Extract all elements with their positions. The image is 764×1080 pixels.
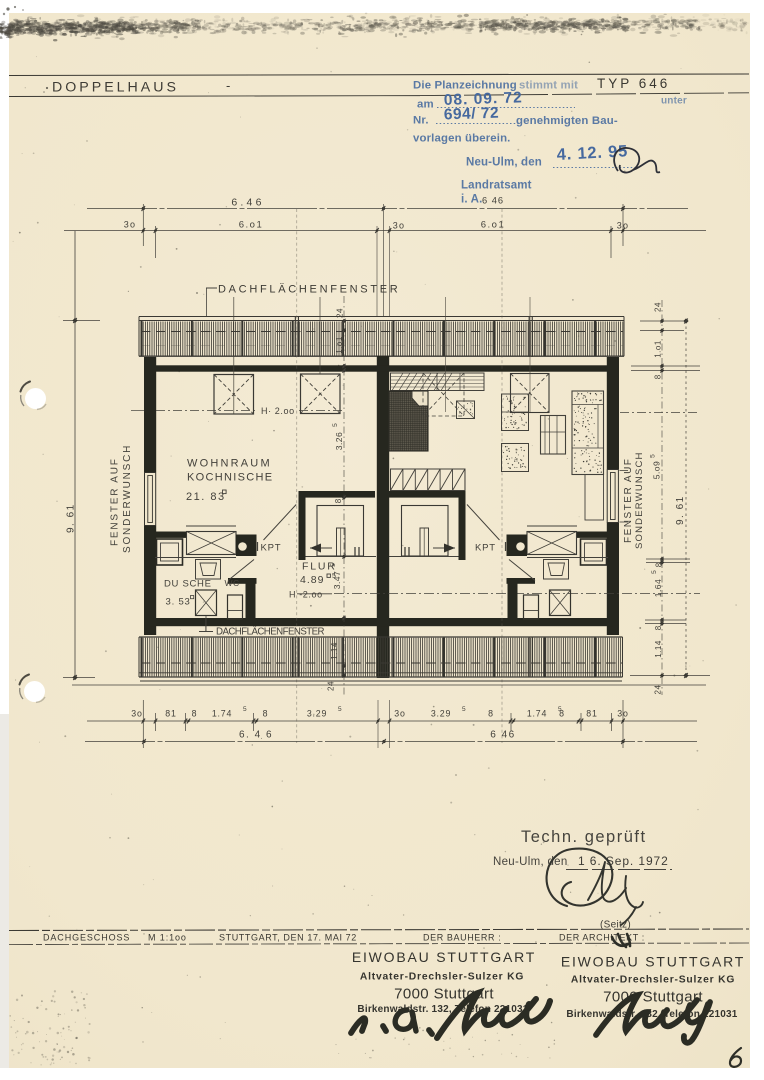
svg-text:EIWOBAU STUTTGART: EIWOBAU STUTTGART <box>561 954 745 970</box>
svg-text:Altvater-Drechsler-Sulzer KG: Altvater-Drechsler-Sulzer KG <box>360 972 524 983</box>
svg-text:1.o1: 1.o1 <box>654 340 663 358</box>
svg-text:vorlagen überein.: vorlagen überein. <box>413 133 511 145</box>
svg-text:6.o1: 6.o1 <box>239 220 264 231</box>
svg-text:TYP 646: TYP 646 <box>597 76 670 91</box>
svg-text:8: 8 <box>334 498 343 503</box>
svg-text:1.64: 1.64 <box>653 579 663 598</box>
svg-text:1.74: 1.74 <box>527 709 547 719</box>
svg-text:EIWOBAU STUTTGART: EIWOBAU STUTTGART <box>352 949 536 965</box>
svg-text:6. 4 6: 6. 4 6 <box>239 730 273 741</box>
svg-text:DER ARCHITEKT :: DER ARCHITEKT : <box>559 933 645 943</box>
svg-text:DACHFLÄCHENFENSTER: DACHFLÄCHENFENSTER <box>216 627 325 638</box>
svg-text:4.89: 4.89 <box>300 574 324 586</box>
svg-text:WOHNRAUM: WOHNRAUM <box>187 458 272 470</box>
svg-text:DACHFLÄCHENFENSTER: DACHFLÄCHENFENSTER <box>218 284 400 296</box>
svg-text:SONDERWUNSCH: SONDERWUNSCH <box>122 444 133 553</box>
svg-text:1.o1: 1.o1 <box>335 336 344 354</box>
svg-text:unter: unter <box>661 96 687 107</box>
svg-text:-: - <box>226 78 231 93</box>
svg-text:DACHGESCHOSS: DACHGESCHOSS <box>43 933 130 943</box>
svg-text:Nr.: Nr. <box>413 115 429 127</box>
svg-text:STUTTGART, DEN 17. MAI 72: STUTTGART, DEN 17. MAI 72 <box>219 933 357 943</box>
svg-text:5: 5 <box>332 423 339 427</box>
svg-text:8: 8 <box>488 709 494 719</box>
svg-text:KPT: KPT <box>475 543 496 554</box>
svg-text:694/ 72: 694/ 72 <box>444 105 500 124</box>
svg-text:24: 24 <box>327 681 336 691</box>
svg-text:6.o1: 6.o1 <box>481 220 506 231</box>
svg-text:5: 5 <box>462 706 467 713</box>
svg-text:3o: 3o <box>394 709 405 719</box>
svg-text:DOPPELHAUS: DOPPELHAUS <box>52 80 179 96</box>
svg-text:5: 5 <box>243 706 248 713</box>
svg-text:6.46: 6.46 <box>231 197 264 209</box>
svg-text:stimmt mit: stimmt mit <box>519 80 578 92</box>
svg-text:6 46: 6 46 <box>482 196 504 206</box>
svg-text:24: 24 <box>654 302 663 312</box>
svg-text:81: 81 <box>586 709 597 719</box>
svg-text:Neu-Ulm, den: Neu-Ulm, den <box>466 157 542 169</box>
svg-text:9. 61: 9. 61 <box>66 503 77 533</box>
svg-text:3.29: 3.29 <box>307 709 327 719</box>
svg-text:5.o9: 5.o9 <box>652 461 662 480</box>
svg-text:81: 81 <box>165 709 176 719</box>
svg-text:KPT: KPT <box>261 543 282 554</box>
svg-text:24: 24 <box>336 308 345 318</box>
svg-text:5: 5 <box>650 454 657 458</box>
svg-text:5: 5 <box>330 563 337 567</box>
svg-text:8: 8 <box>263 709 269 719</box>
svg-text:21. 83: 21. 83 <box>186 491 226 503</box>
svg-text:Landratsamt: Landratsamt <box>461 180 532 192</box>
svg-text:5: 5 <box>651 570 658 574</box>
svg-text:3o: 3o <box>393 221 405 231</box>
svg-text:Neu-Ulm, den: Neu-Ulm, den <box>493 856 568 868</box>
svg-text:4. 12. 95: 4. 12. 95 <box>556 142 628 164</box>
svg-text:1.14: 1.14 <box>654 640 663 658</box>
svg-text:24: 24 <box>654 685 663 695</box>
svg-text:3.29: 3.29 <box>431 709 451 719</box>
svg-text:3o: 3o <box>617 221 629 231</box>
svg-text:H· 2.oo: H· 2.oo <box>261 406 295 416</box>
svg-text:3.26: 3.26 <box>334 432 344 451</box>
svg-text:3.47: 3.47 <box>332 571 342 590</box>
svg-text:8: 8 <box>654 625 663 630</box>
svg-text:am: am <box>417 99 434 111</box>
svg-text:1.74: 1.74 <box>212 709 232 719</box>
svg-text:Altvater-Drechsler-Sulzer KG: Altvater-Drechsler-Sulzer KG <box>571 975 735 986</box>
svg-text:M 1:1oo: M 1:1oo <box>148 933 187 943</box>
svg-text:i. A.: i. A. <box>461 194 482 206</box>
svg-text:8: 8 <box>655 562 664 567</box>
svg-text:8: 8 <box>192 709 198 719</box>
svg-text:5: 5 <box>338 706 343 713</box>
svg-text:9. 61: 9. 61 <box>675 495 686 525</box>
svg-text:FENSTER AUF: FENSTER AUF <box>110 457 121 546</box>
svg-text:genehmigten Bau-: genehmigten Bau- <box>516 115 618 127</box>
svg-text:1 6. Sep. 1972: 1 6. Sep. 1972 <box>578 854 669 868</box>
svg-text:H -2.oo: H -2.oo <box>289 590 323 600</box>
svg-text:5: 5 <box>558 706 563 713</box>
svg-text:8: 8 <box>654 374 663 379</box>
svg-text:WC: WC <box>225 578 240 588</box>
svg-text:3. 53: 3. 53 <box>166 597 191 608</box>
svg-text:FENSTER AUF: FENSTER AUF <box>623 458 634 543</box>
svg-text:Techn. geprüft: Techn. geprüft <box>521 828 647 846</box>
svg-text:6 46: 6 46 <box>490 730 515 741</box>
svg-text:3o: 3o <box>124 220 136 230</box>
svg-text:SONDERWUNSCH: SONDERWUNSCH <box>634 451 645 549</box>
svg-text:3o: 3o <box>131 709 142 719</box>
svg-text:DER BAUHERR :: DER BAUHERR : <box>423 933 501 943</box>
svg-text:KOCHNISCHE: KOCHNISCHE <box>187 472 273 484</box>
svg-text:DU SCHE: DU SCHE <box>164 579 212 590</box>
svg-text:Birkenwaldstr. 132, Telefon 22: Birkenwaldstr. 132, Telefon 221031 <box>566 1009 737 1020</box>
